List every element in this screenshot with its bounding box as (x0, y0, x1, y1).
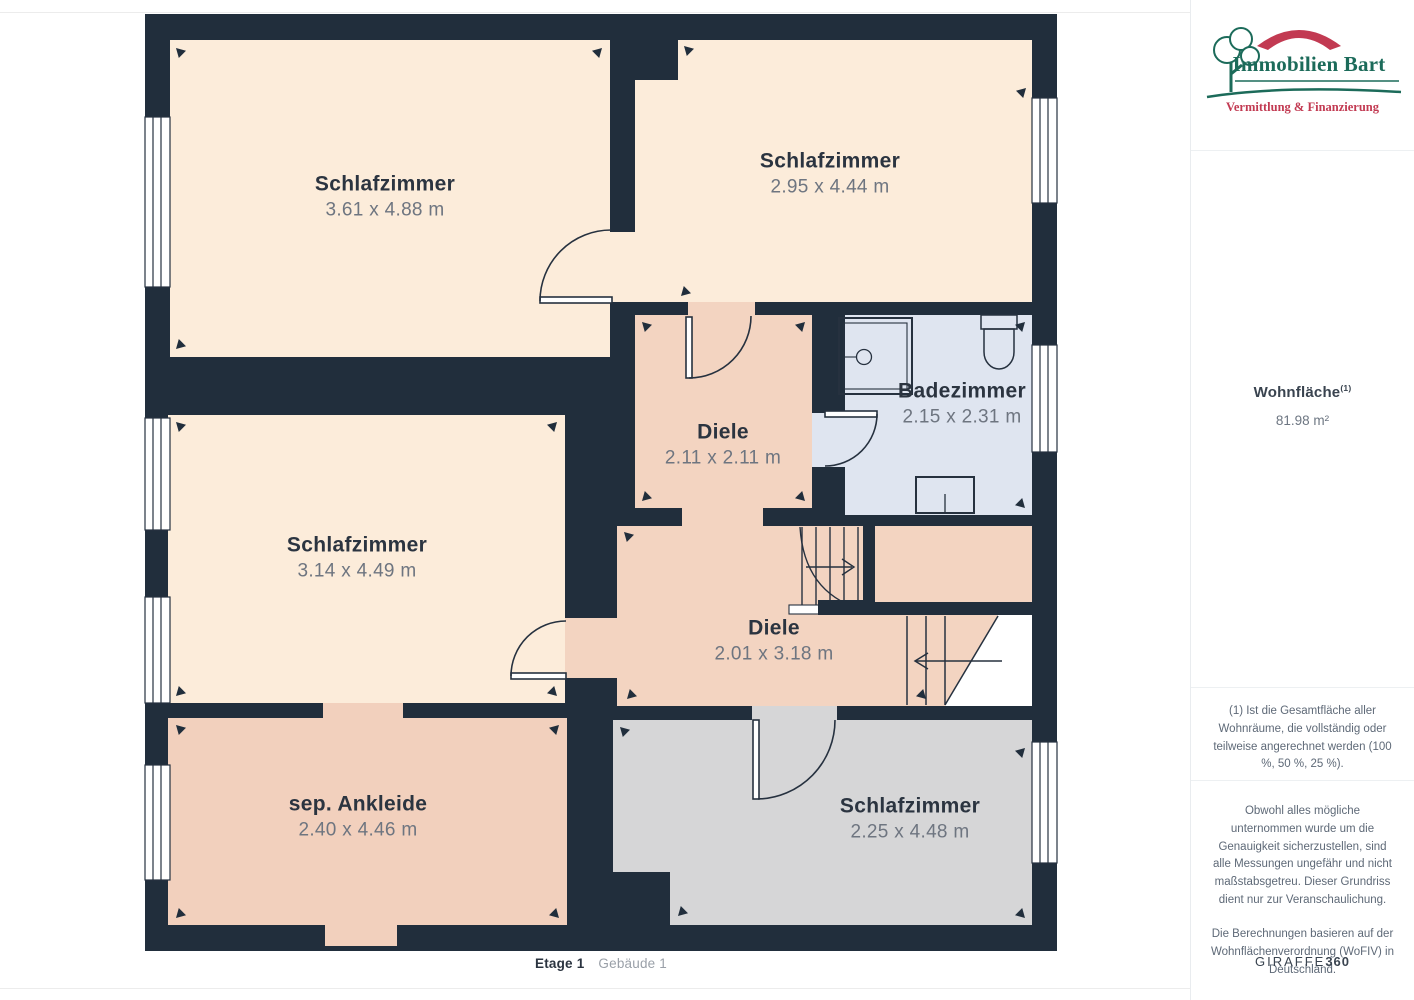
room-name: Schlafzimmer (840, 795, 980, 819)
logo-section: Immobilien Bart Vermittlung & Finanzieru… (1191, 6, 1414, 151)
door-leaf-1 (540, 297, 612, 303)
room-label-diele-1: Diele 2.11 x 2.11 m (665, 421, 781, 470)
door-leaf-2 (686, 317, 692, 378)
room-label-schlafzimmer-4: Schlafzimmer 2.25 x 4.48 m (840, 795, 980, 844)
room-dims: 2.40 x 4.46 m (289, 820, 428, 842)
living-area-value: 81.98 m² (1191, 413, 1414, 428)
building-label: Gebäude 1 (598, 956, 667, 971)
company-logo: Immobilien Bart Vermittlung & Finanzieru… (1203, 6, 1403, 136)
sidebar: Immobilien Bart Vermittlung & Finanzieru… (1190, 0, 1414, 1000)
disclaimer-text: Obwohl alles mögliche unternommen wurde … (1208, 803, 1397, 910)
window-right-1 (1032, 98, 1057, 203)
window-left-1 (145, 117, 170, 287)
window-right-2 (1032, 345, 1057, 452)
window-left-2 (145, 418, 170, 530)
door-leaf-4 (511, 673, 566, 679)
plan-footer: Etage 1Gebäude 1 (0, 956, 1202, 971)
room-name: Badezimmer (898, 380, 1026, 404)
door-opening-4 (565, 618, 619, 678)
room-label-badezimmer: Badezimmer 2.15 x 2.31 m (898, 380, 1026, 429)
room-dims: 3.61 x 4.88 m (315, 200, 455, 222)
footnote-1: (1) Ist die Gesamtfläche aller Wohnräume… (1191, 688, 1414, 781)
door-opening-1 (610, 232, 637, 302)
door-opening-5 (752, 706, 837, 722)
brand-name: GIRAFFE (1255, 954, 1325, 969)
room-label-schlafzimmer-1: Schlafzimmer 3.61 x 4.88 m (315, 173, 455, 222)
passage-ankleide (323, 703, 403, 720)
window-right-3 (1032, 742, 1057, 863)
logo-swoosh (1207, 89, 1401, 97)
roof-icon (1257, 30, 1341, 50)
floor-label: Etage 1 (535, 956, 584, 971)
passage-diele (682, 506, 763, 528)
room-label-diele-2: Diele 2.01 x 3.18 m (714, 617, 833, 666)
corridor-east (875, 526, 1032, 602)
logo-name: Immobilien Bart (1233, 52, 1386, 77)
door-leaf-5 (753, 720, 759, 799)
room-name: Schlafzimmer (315, 173, 455, 197)
door-leaf-3 (825, 411, 877, 417)
wall-stair-edge (818, 600, 875, 615)
logo-tagline: Vermittlung & Finanzierung (1203, 100, 1403, 115)
room-name: Schlafzimmer (760, 150, 900, 174)
room-name: Diele (714, 617, 833, 641)
room-dims: 2.11 x 2.11 m (665, 448, 781, 470)
door-opening-2 (688, 302, 755, 317)
room-dims: 2.01 x 3.18 m (714, 644, 833, 666)
room-label-schlafzimmer-3: Schlafzimmer 3.14 x 4.49 m (287, 534, 427, 583)
room-name: Diele (665, 421, 781, 445)
window-left-4 (145, 765, 170, 880)
room-schlafzimmer-2-top (678, 40, 1032, 82)
room-dims: 2.25 x 4.48 m (840, 822, 980, 844)
room-dims: 2.15 x 2.31 m (898, 407, 1026, 429)
floorplan: Schlafzimmer 3.61 x 4.88 m Schlafzimmer … (0, 0, 1190, 1000)
room-diele-1 (635, 315, 812, 508)
giraffe360-brand: GIRAFFE360 (1191, 952, 1414, 973)
footnote-2: Obwohl alles mögliche unternommen wurde … (1191, 781, 1414, 1000)
room-name: sep. Ankleide (289, 793, 428, 817)
room-name: Schlafzimmer (287, 534, 427, 558)
footnote-1-text: (1) Ist die Gesamtfläche aller Wohnräume… (1208, 703, 1397, 774)
room-dims: 2.95 x 4.44 m (760, 177, 900, 199)
living-area-title: Wohnfläche (1254, 384, 1341, 401)
ankleide-niche (325, 925, 397, 946)
door-opening-3 (812, 413, 847, 467)
room-schlafzimmer-4-lower (670, 872, 1032, 925)
room-label-schlafzimmer-2: Schlafzimmer 2.95 x 4.44 m (760, 150, 900, 199)
room-dims: 3.14 x 4.49 m (287, 561, 427, 583)
brand-suffix: 360 (1325, 954, 1350, 969)
page: Schlafzimmer 3.61 x 4.88 m Schlafzimmer … (0, 0, 1414, 1000)
window-left-3 (145, 597, 170, 703)
living-area-section: Wohnfläche(1) 81.98 m² (1191, 151, 1414, 688)
room-label-ankleide: sep. Ankleide 2.40 x 4.46 m (289, 793, 428, 842)
living-area-label: Wohnfläche(1) (1191, 383, 1414, 401)
floorplan-svg (0, 0, 1190, 1000)
living-area-footnote-ref: (1) (1340, 383, 1351, 393)
